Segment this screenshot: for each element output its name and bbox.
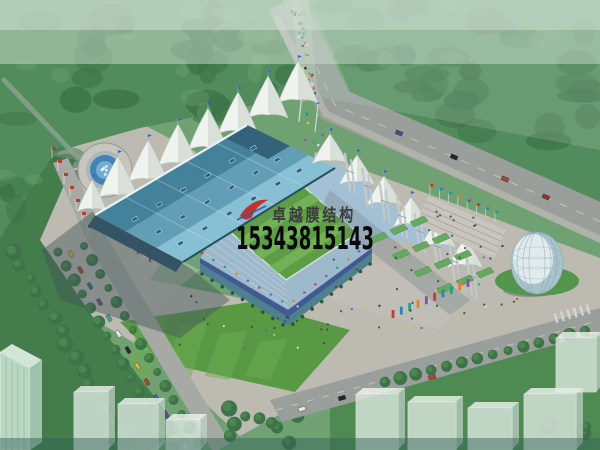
stadium-aerial-rendering: 卓越膜结构 15343815143 xyxy=(0,0,600,450)
watermark: 卓越膜结构 15343815143 xyxy=(236,200,374,257)
phone-number-text: 15343815143 xyxy=(236,221,374,257)
rendering-canvas: 卓越膜结构 15343815143 xyxy=(0,0,600,450)
